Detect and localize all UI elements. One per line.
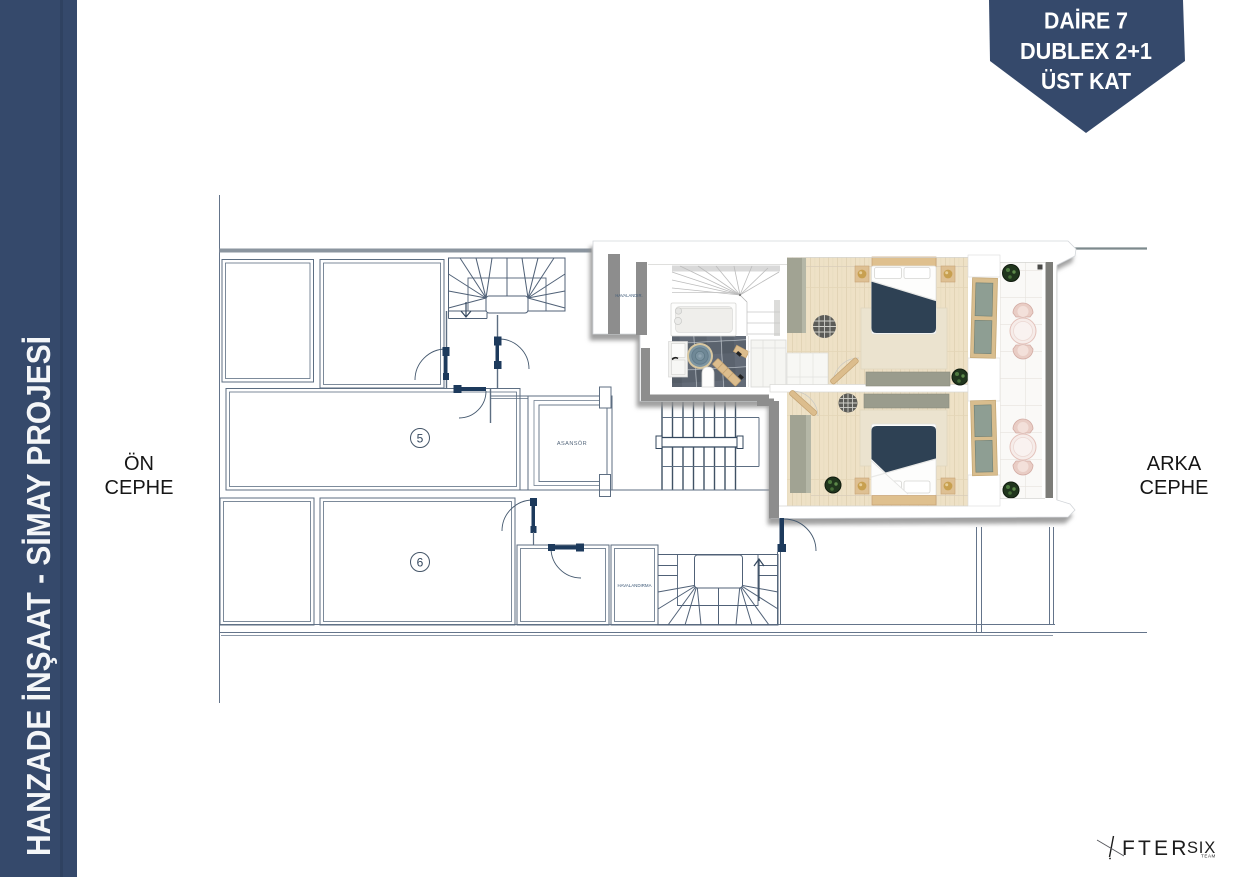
svg-text:6: 6 bbox=[417, 556, 424, 570]
svg-text:DUBLEX 2+1: DUBLEX 2+1 bbox=[1020, 38, 1152, 64]
svg-text:CEPHE: CEPHE bbox=[105, 477, 174, 499]
svg-text:DAİRE 7: DAİRE 7 bbox=[1044, 8, 1128, 34]
svg-text:ARKA: ARKA bbox=[1147, 453, 1202, 475]
svg-text:FTER: FTER bbox=[1122, 837, 1190, 860]
svg-text:HAVALANDIRMA: HAVALANDIRMA bbox=[618, 583, 652, 588]
svg-text:CEPHE: CEPHE bbox=[1140, 477, 1209, 499]
svg-text:TEAM: TEAM bbox=[1201, 854, 1216, 859]
svg-text:HANZADE İNŞAAT - SİMAY PROJESİ: HANZADE İNŞAAT - SİMAY PROJESİ bbox=[20, 336, 57, 856]
svg-text:HAVALANDIR.: HAVALANDIR. bbox=[615, 293, 642, 298]
svg-text:ÜST KAT: ÜST KAT bbox=[1041, 68, 1131, 94]
svg-text:5: 5 bbox=[417, 432, 424, 446]
svg-text:ASANSÖR: ASANSÖR bbox=[557, 440, 587, 447]
svg-text:ÖN: ÖN bbox=[124, 453, 154, 475]
